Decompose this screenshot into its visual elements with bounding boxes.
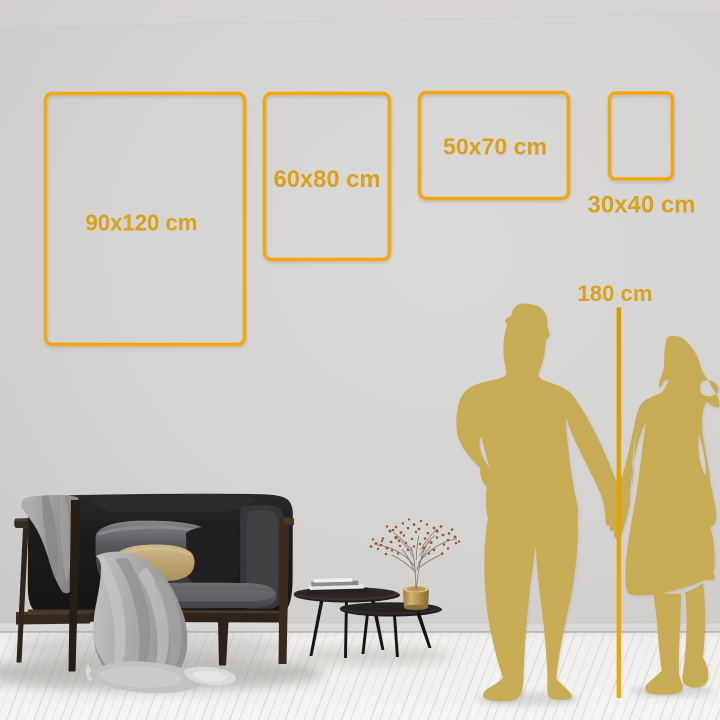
svg-text:180 cm: 180 cm (578, 281, 653, 306)
svg-text:30x40 cm: 30x40 cm (588, 191, 696, 218)
svg-text:90x120 cm: 90x120 cm (86, 210, 198, 236)
svg-text:60x80 cm: 60x80 cm (274, 167, 381, 193)
svg-text:50x70 cm: 50x70 cm (443, 134, 547, 160)
